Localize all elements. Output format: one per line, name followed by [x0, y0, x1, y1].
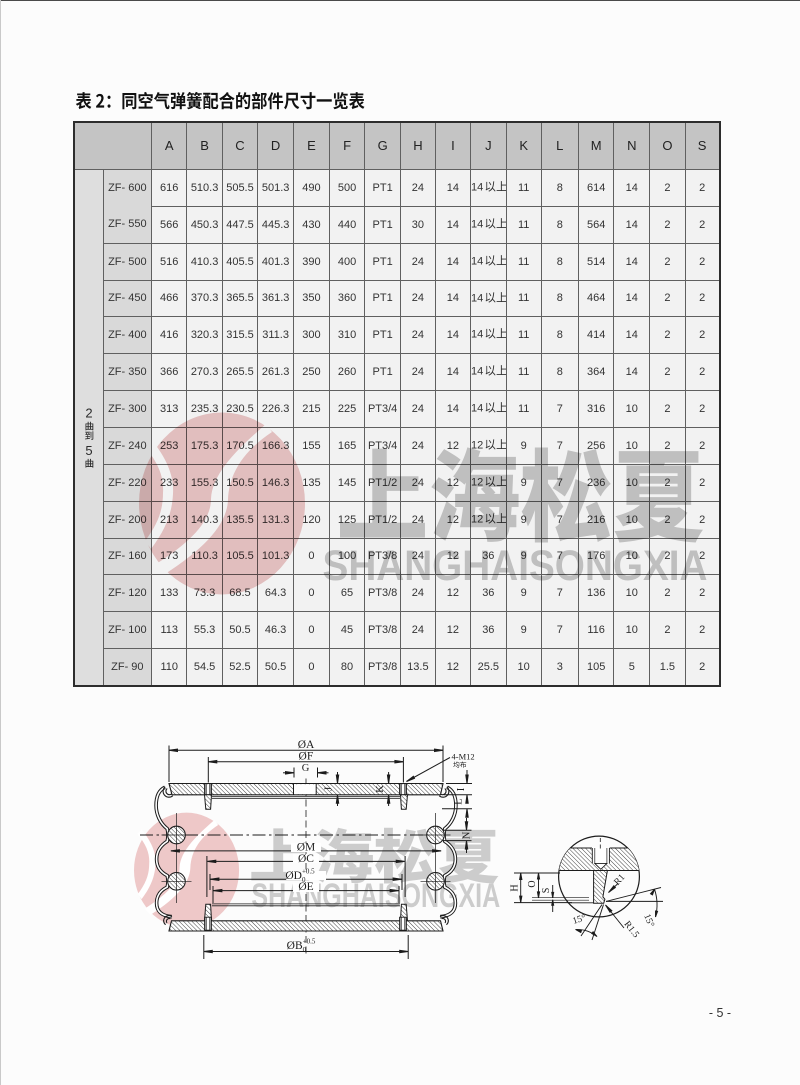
svg-text:R1: R1: [613, 873, 628, 888]
svg-text:I: I: [456, 787, 467, 791]
svg-text:J: J: [324, 787, 335, 791]
svg-text:O: O: [527, 880, 538, 887]
svg-text:ØE: ØE: [298, 881, 313, 893]
svg-text:ØA: ØA: [298, 739, 315, 751]
svg-text:SHANGHAISONGXIA: SHANGHAISONGXIA: [251, 877, 500, 915]
svg-text:4-M12: 4-M12: [452, 752, 475, 762]
svg-text:ØF: ØF: [299, 750, 314, 762]
svg-text:15°: 15°: [641, 912, 656, 929]
svg-text:G: G: [302, 763, 310, 774]
svg-text:ØM: ØM: [297, 841, 316, 853]
svg-text:ØC: ØC: [298, 853, 314, 865]
svg-text:5: 5: [85, 443, 92, 458]
svg-text:R1.5: R1.5: [622, 920, 641, 941]
svg-text:S: S: [541, 888, 552, 894]
svg-text:K: K: [375, 785, 386, 793]
svg-text:H: H: [509, 884, 520, 891]
svg-text:L: L: [454, 798, 465, 804]
svg-text:2: 2: [85, 405, 92, 420]
svg-text:N: N: [462, 831, 473, 839]
svg-text:SHANGHAISONGXIA: SHANGHAISONGXIA: [323, 542, 708, 590]
